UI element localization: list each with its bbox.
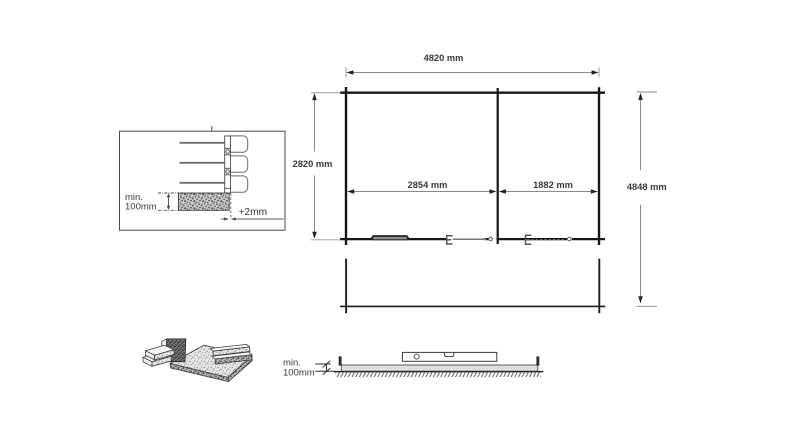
svg-text:100mm: 100mm	[125, 201, 157, 212]
svg-text:+2mm: +2mm	[239, 207, 268, 218]
svg-text:1882 mm: 1882 mm	[533, 180, 573, 190]
svg-text:2854 mm: 2854 mm	[408, 180, 448, 190]
svg-text:100mm: 100mm	[283, 368, 315, 379]
svg-text:2820 mm: 2820 mm	[293, 159, 333, 169]
svg-text:4820 mm: 4820 mm	[424, 53, 464, 63]
svg-text:4848 mm: 4848 mm	[627, 182, 667, 192]
